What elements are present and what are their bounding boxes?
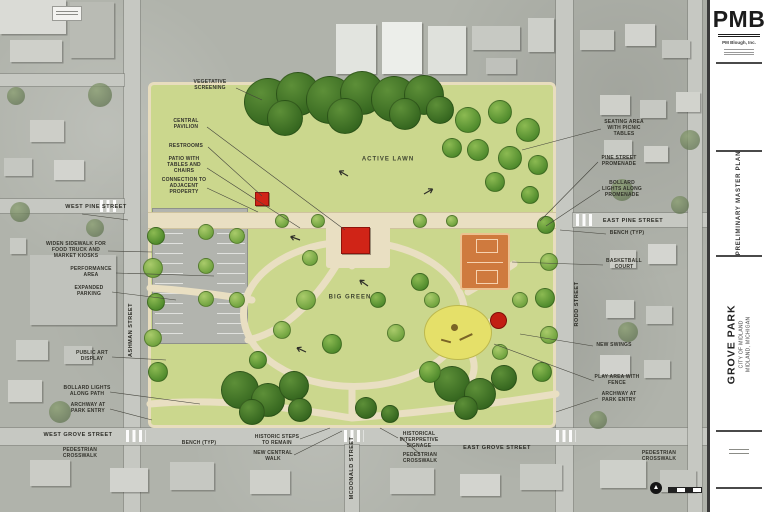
- label-active-lawn: ACTIVE LAWN: [362, 156, 414, 163]
- tree-icon: [279, 371, 309, 401]
- building: [600, 460, 646, 488]
- basketball-court-surface: [460, 233, 510, 290]
- label-widen-sidewalk: WIDEN SIDEWALK FOR FOOD TRUCK AND MARKET…: [43, 242, 109, 260]
- label-restrooms: RESTROOMS: [165, 144, 207, 150]
- label-historic-steps: HISTORIC STEPS TO REMAIN: [252, 435, 302, 447]
- tree-icon: [198, 291, 214, 307]
- label-big-green: BIG GREEN: [329, 294, 372, 301]
- tree-icon: [249, 351, 267, 369]
- play-equipment-bar2-icon: [441, 339, 451, 344]
- building: [600, 95, 630, 115]
- tree-icon: [488, 100, 512, 124]
- tree-icon: [454, 396, 478, 420]
- building: [528, 18, 554, 52]
- label-public-art-display: PUBLIC ART DISPLAY: [71, 351, 113, 363]
- tree-icon: [355, 397, 377, 419]
- label-performance-area: PERFORMANCE AREA: [65, 267, 117, 279]
- tree-icon: [322, 334, 342, 354]
- plan-sheet: VEGETATIVE SCREENINGCENTRAL PAVILIONREST…: [0, 0, 768, 512]
- building: [600, 355, 630, 375]
- label-ped-crosswalk-west: PEDESTRIAN CROSSWALK: [58, 448, 102, 460]
- label-play-area-fence: PLAY AREA WITH FENCE: [593, 375, 641, 387]
- tree-icon: [512, 292, 528, 308]
- label-patio-tables-chairs: PATIO WITH TABLES AND CHAIRS: [161, 157, 207, 175]
- street-label-west-grove: WEST GROVE STREET: [43, 432, 112, 438]
- sheet-title-wrap: PRELIMINARY MASTER PLAN: [710, 153, 768, 253]
- street-label-east-grove: EAST GROVE STREET: [463, 445, 531, 451]
- label-veg-screening: VEGETATIVE SCREENING: [183, 80, 237, 92]
- aerial-tree: [618, 322, 638, 342]
- crosswalk-east-pine: [576, 214, 592, 226]
- aerial-tree: [86, 219, 104, 237]
- building: [646, 306, 672, 324]
- label-archway-entry-east: ARCHWAY AT PARK ENTRY: [596, 392, 642, 404]
- tree-icon: [267, 100, 303, 136]
- tree-icon: [535, 288, 555, 308]
- tree-icon: [327, 98, 363, 134]
- tree-icon: [302, 250, 318, 266]
- central-pavilion-structure: [341, 227, 370, 254]
- project-title-wrap: GROVE PARK CITY OF MIDLAND MIDLAND, MICH…: [710, 262, 768, 426]
- building: [54, 160, 84, 180]
- label-bench-typ-east: BENCH (TYP): [607, 231, 647, 237]
- label-connection-adjacent: CONNECTION TO ADJACENT PROPERTY: [161, 178, 207, 196]
- label-bollard-lights-promenade: BOLLARD LIGHTS ALONG PROMENADE: [599, 181, 645, 199]
- tree-icon: [229, 228, 245, 244]
- building: [648, 244, 676, 264]
- firm-address-illegible: [724, 47, 754, 57]
- street-label-rodd: RODD STREET: [574, 282, 580, 327]
- tree-icon: [426, 96, 454, 124]
- tree-icon: [532, 362, 552, 382]
- label-archway-entry-west: ARCHWAY AT PARK ENTRY: [65, 403, 111, 415]
- building: [16, 340, 48, 360]
- map-area: VEGETATIVE SCREENINGCENTRAL PAVILIONREST…: [0, 0, 707, 512]
- building: [10, 40, 62, 62]
- titleblock-rule-4: [716, 430, 762, 432]
- tree-icon: [411, 273, 429, 291]
- aerial-tree: [10, 202, 30, 222]
- tree-icon: [198, 258, 214, 274]
- aerial-tree: [680, 130, 700, 150]
- building: [644, 360, 670, 378]
- building: [460, 474, 500, 496]
- street-label-ashman: ASHMAN STREET: [128, 303, 134, 357]
- building: [382, 22, 422, 74]
- tree-icon: [239, 399, 265, 425]
- tree-icon: [198, 224, 214, 240]
- tree-icon: [147, 293, 165, 311]
- building: [336, 24, 376, 74]
- label-new-swings: NEW SWINGS: [592, 343, 636, 349]
- tree-icon: [442, 138, 462, 158]
- firm-logo: PMB: [710, 8, 768, 31]
- court-key-bottom: [476, 270, 498, 284]
- tree-icon: [413, 214, 427, 228]
- tree-icon: [446, 215, 458, 227]
- road-far-east: [688, 0, 702, 512]
- tree-icon: [296, 290, 316, 310]
- building: [110, 468, 148, 492]
- tree-icon: [229, 292, 245, 308]
- label-basketball-court: BASKETBALL COURT: [602, 259, 646, 271]
- titleblock-rule-1: [716, 62, 762, 64]
- label-bench-typ-south: BENCH (TYP): [178, 441, 220, 447]
- tree-icon: [491, 365, 517, 391]
- tree-icon: [381, 405, 399, 423]
- tree-icon: [455, 107, 481, 133]
- logo-rule: [718, 34, 760, 37]
- building: [606, 300, 634, 318]
- building: [676, 92, 700, 112]
- tree-icon: [148, 362, 168, 382]
- tree-icon: [143, 258, 163, 278]
- tree-icon: [521, 186, 539, 204]
- label-bollard-lights-path: BOLLARD LIGHTS ALONG PATH: [63, 386, 111, 398]
- street-label-east-pine: EAST PINE STREET: [603, 218, 663, 224]
- title-block: PMB PM Blough, Inc. PRELIMINARY MASTER P…: [710, 0, 768, 512]
- project-state: MIDLAND, MICHIGAN: [746, 304, 753, 384]
- firm-name: PM Blough, Inc.: [710, 40, 768, 45]
- building: [10, 238, 26, 254]
- play-area-surface: [424, 305, 492, 360]
- sheet-title: PRELIMINARY MASTER PLAN: [736, 151, 742, 255]
- building: [428, 26, 466, 74]
- aerial-tree: [671, 196, 689, 214]
- aerial-tree: [7, 87, 25, 105]
- building: [625, 24, 655, 46]
- label-ped-crosswalk-east: PEDESTRIAN CROSSWALK: [637, 451, 681, 463]
- north-arrow-icon: [650, 482, 662, 494]
- label-expanded-parking: EXPANDED PARKING: [65, 286, 113, 298]
- tree-icon: [516, 118, 540, 142]
- building: [250, 470, 290, 494]
- tree-icon: [498, 146, 522, 170]
- building: [8, 380, 42, 402]
- play-feature-structure: [490, 312, 507, 329]
- label-pine-street-promenade: PINE STREET PROMENADE: [597, 156, 641, 168]
- building: [486, 58, 516, 74]
- tree-icon: [492, 344, 508, 360]
- project-name: GROVE PARK: [726, 304, 739, 384]
- building: [30, 120, 64, 142]
- tree-icon: [485, 172, 505, 192]
- tree-icon: [144, 329, 162, 347]
- building: [640, 100, 666, 118]
- tree-icon: [540, 326, 558, 344]
- building: [170, 462, 214, 490]
- play-equipment-bar-icon: [459, 333, 473, 341]
- tree-icon: [528, 155, 548, 175]
- tree-icon: [311, 214, 325, 228]
- tree-icon: [537, 216, 555, 234]
- label-central-pavilion: CENTRAL PAVILION: [166, 119, 206, 131]
- street-label-west-pine: WEST PINE STREET: [65, 204, 126, 210]
- street-label-mcdonald: MCDONALD STREET: [349, 437, 355, 500]
- label-new-central-walk: NEW CENTRAL WALK: [251, 451, 295, 463]
- graphic-scale-icon: [668, 487, 702, 493]
- crosswalk-east-grove: [556, 430, 576, 442]
- building: [4, 158, 32, 176]
- court-centerline: [467, 262, 503, 263]
- sheet-date-illegible: [726, 446, 752, 457]
- tree-icon: [147, 227, 165, 245]
- building: [30, 460, 70, 486]
- crosswalk-west-grove: [126, 430, 146, 442]
- label-historical-signage: HISTORICAL INTERPRETIVE SIGNAGE: [397, 432, 441, 450]
- building: [472, 26, 520, 50]
- building: [644, 146, 668, 162]
- tree-icon: [288, 398, 312, 422]
- tree-icon: [467, 139, 489, 161]
- tree-icon: [424, 292, 440, 308]
- aerial-tree: [88, 83, 112, 107]
- tree-icon: [370, 292, 386, 308]
- label-ped-crosswalk-center: PEDESTRIAN CROSSWALK: [400, 453, 440, 465]
- tree-icon: [389, 98, 421, 130]
- tree-icon: [275, 214, 289, 228]
- building: [390, 468, 434, 494]
- tree-icon: [419, 361, 441, 383]
- label-seating-picnic: SEATING AREA WITH PICNIC TABLES: [600, 120, 648, 138]
- restroom-structure: [255, 192, 269, 206]
- court-key-top: [476, 239, 498, 253]
- aerial-tree: [589, 411, 607, 429]
- tree-icon: [540, 253, 558, 271]
- building: [520, 464, 562, 490]
- tree-icon: [387, 324, 405, 342]
- building: [662, 40, 690, 58]
- play-equipment-icon: [451, 324, 458, 331]
- titleblock-rule-5: [716, 487, 762, 489]
- tree-icon: [273, 321, 291, 339]
- building: [580, 30, 614, 50]
- small-legend-box: [52, 6, 82, 21]
- titleblock-rule-3: [716, 255, 762, 257]
